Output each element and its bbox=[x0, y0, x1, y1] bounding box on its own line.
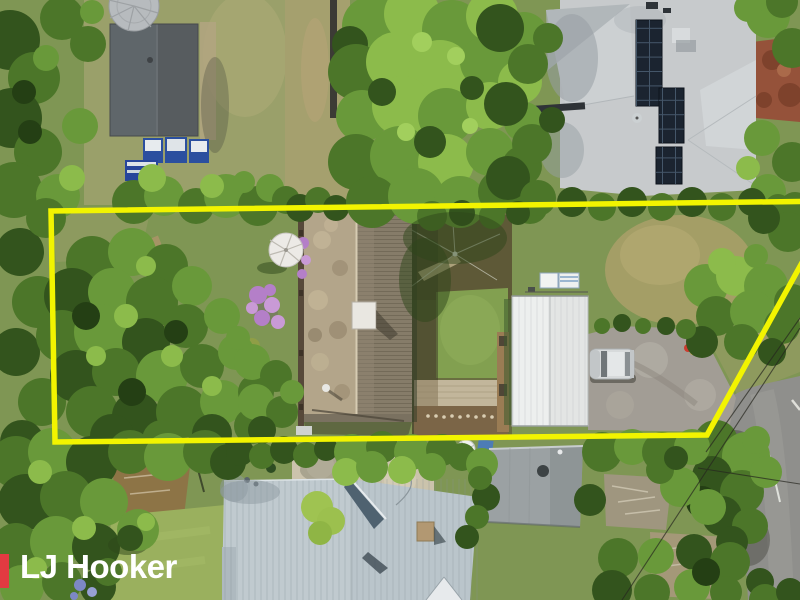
parked-car bbox=[590, 349, 636, 383]
lj-hooker-logo: LJ Hooker bbox=[0, 548, 178, 588]
main-house-roof bbox=[296, 212, 417, 436]
trees-center-canopy bbox=[328, 0, 565, 228]
small-gray-shed bbox=[487, 446, 583, 527]
white-shed bbox=[504, 273, 588, 426]
watermark-text: LJ Hooker bbox=[20, 548, 178, 585]
aerial-property-photo: LJ Hooker bbox=[0, 0, 800, 600]
aerial-scene: LJ Hooker bbox=[0, 0, 800, 600]
roof-skylight bbox=[352, 302, 376, 329]
brand-bar-icon bbox=[0, 554, 9, 588]
